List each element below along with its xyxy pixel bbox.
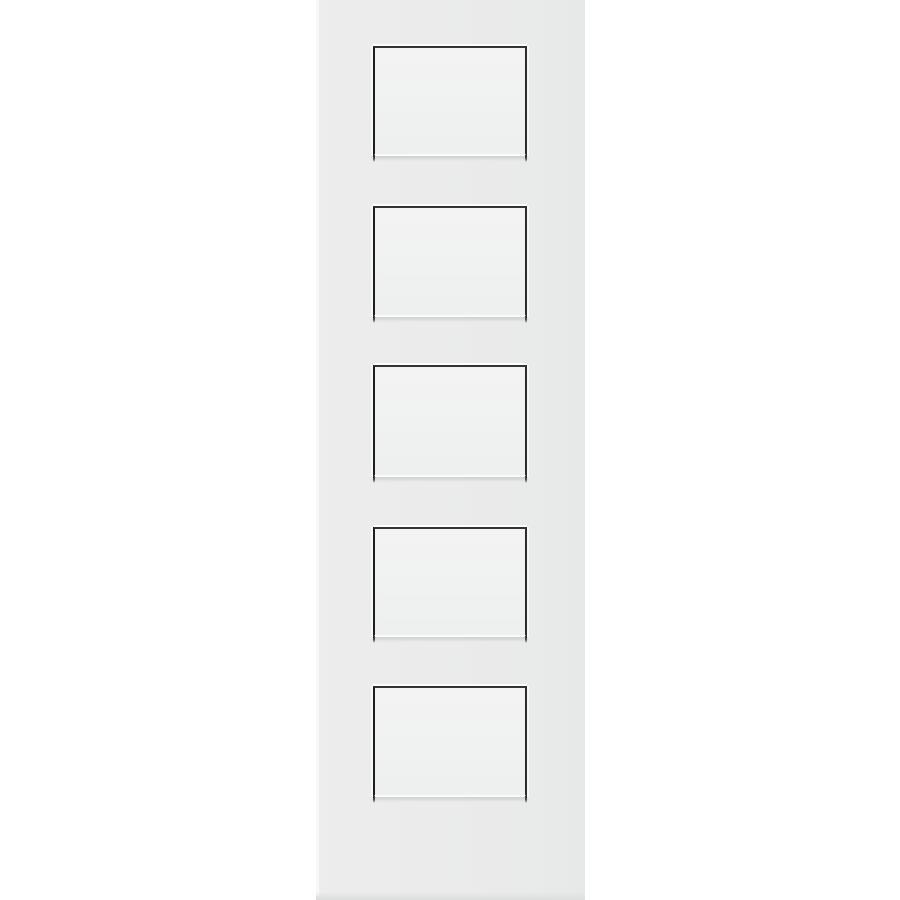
product-image (0, 0, 900, 900)
door-panel-4 (373, 527, 527, 637)
door-panel-1 (373, 46, 527, 156)
door-panel-3 (373, 365, 527, 477)
five-panel-door (316, 0, 585, 900)
door-panel-5 (373, 686, 527, 797)
door-panel-2 (373, 206, 527, 317)
